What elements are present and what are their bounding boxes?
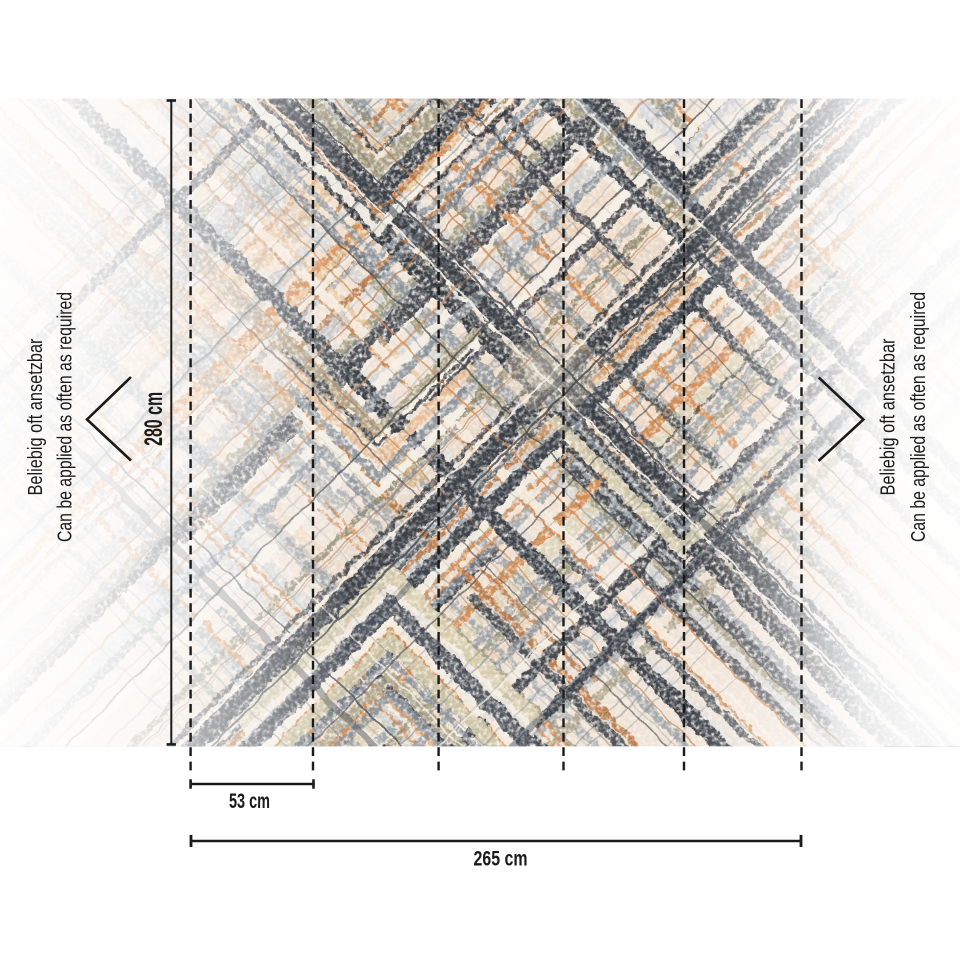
svg-text:Beliebig oft ansetzbar: Beliebig oft ansetzbar: [877, 338, 900, 495]
svg-text:53 cm: 53 cm: [229, 790, 270, 813]
svg-text:Can be applied as often as req: Can be applied as often as required: [54, 292, 77, 542]
svg-text:265 cm: 265 cm: [474, 847, 528, 871]
svg-text:280 cm: 280 cm: [140, 392, 168, 446]
svg-text:Beliebig oft ansetzbar: Beliebig oft ansetzbar: [24, 338, 47, 495]
svg-text:Can be applied as often as req: Can be applied as often as required: [907, 292, 930, 542]
